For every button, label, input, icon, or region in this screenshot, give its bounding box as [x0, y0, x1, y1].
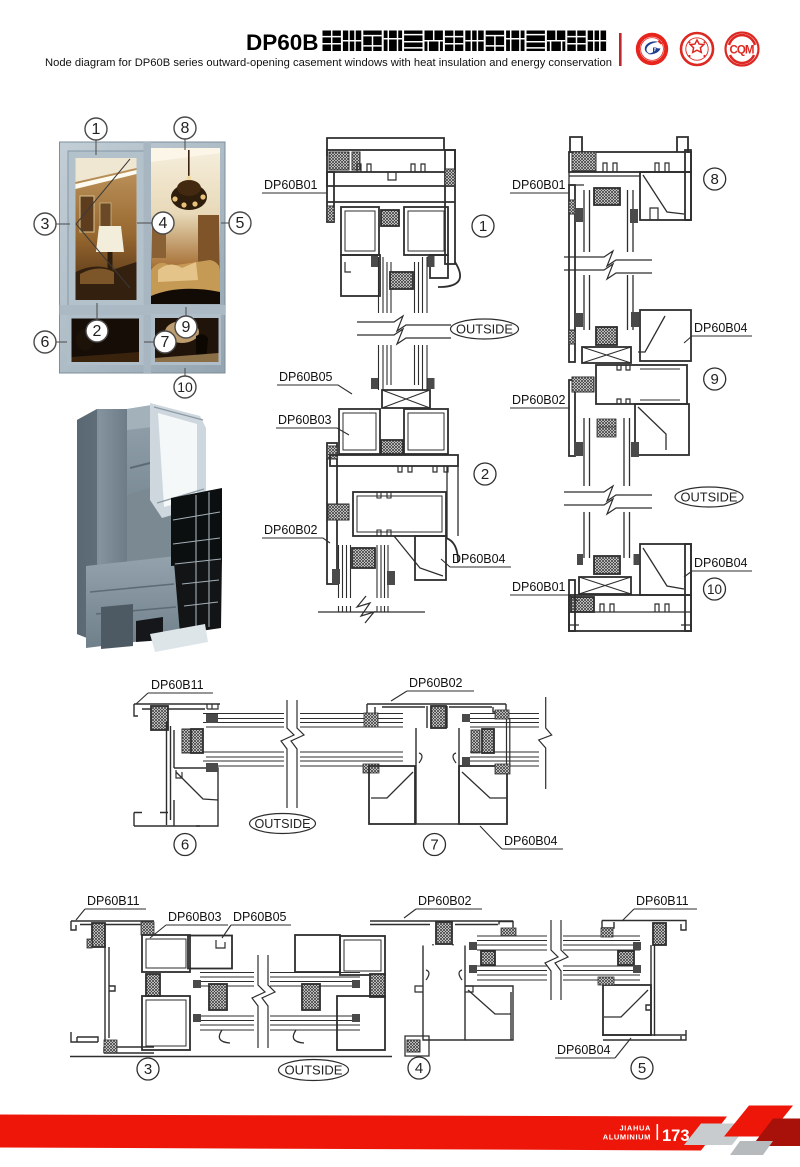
svg-text:DP60B01: DP60B01 [512, 178, 566, 192]
svg-text:DP60B05: DP60B05 [279, 370, 333, 384]
svg-text:7: 7 [161, 334, 170, 351]
svg-text:DP60B11: DP60B11 [151, 678, 204, 692]
svg-text:DP60B02: DP60B02 [512, 393, 566, 407]
svg-text:B: B [653, 46, 659, 55]
svg-text:DP60B02: DP60B02 [409, 676, 463, 690]
svg-text:DP60B04: DP60B04 [694, 321, 748, 335]
svg-text:3: 3 [41, 216, 50, 233]
svg-text:DP60B: DP60B [246, 30, 319, 55]
svg-text:OUTSIDE: OUTSIDE [456, 322, 513, 337]
svg-text:9: 9 [711, 371, 719, 388]
svg-text:OUTSIDE: OUTSIDE [285, 1063, 343, 1078]
svg-text:OUTSIDE: OUTSIDE [681, 490, 738, 505]
svg-text:6: 6 [41, 334, 50, 351]
svg-text:JIAHUA: JIAHUA [619, 1124, 651, 1133]
svg-text:DP60B05: DP60B05 [233, 910, 287, 924]
svg-text:DP60B02: DP60B02 [418, 894, 472, 908]
svg-text:OUTSIDE: OUTSIDE [255, 816, 311, 831]
svg-text:1: 1 [479, 218, 487, 235]
svg-text:DP60B04: DP60B04 [694, 556, 748, 570]
svg-text:173: 173 [662, 1127, 690, 1145]
svg-text:10: 10 [177, 379, 193, 395]
svg-text:10: 10 [707, 582, 722, 597]
svg-text:DP60B01: DP60B01 [512, 580, 566, 594]
svg-text:7: 7 [430, 837, 438, 854]
svg-text:DP60B03: DP60B03 [168, 910, 222, 924]
svg-text:3: 3 [144, 1061, 152, 1078]
svg-text:Node diagram for DP60B ser: Node diagram for DP60B series outward-op… [45, 57, 612, 69]
svg-text:DP60B03: DP60B03 [278, 413, 332, 427]
svg-text:4: 4 [159, 215, 168, 232]
svg-text:2: 2 [481, 466, 489, 483]
svg-text:ALUMINIUM: ALUMINIUM [603, 1133, 651, 1142]
svg-text:CQM: CQM [730, 45, 755, 57]
svg-text:5: 5 [638, 1060, 646, 1077]
svg-text:DP60B01: DP60B01 [264, 178, 318, 192]
svg-text:DP60B11: DP60B11 [636, 894, 689, 908]
svg-text:DP60B04: DP60B04 [557, 1043, 611, 1057]
svg-text:8: 8 [711, 171, 719, 188]
svg-text:6: 6 [181, 837, 189, 854]
svg-text:DP60B04: DP60B04 [452, 552, 506, 566]
svg-text:8: 8 [181, 120, 190, 137]
svg-text:4: 4 [415, 1060, 423, 1077]
svg-text:DP60B11: DP60B11 [87, 894, 140, 908]
svg-text:2: 2 [93, 323, 102, 340]
svg-text:DP60B02: DP60B02 [264, 523, 318, 537]
svg-text:9: 9 [182, 319, 191, 336]
svg-text:5: 5 [236, 215, 245, 232]
svg-text:DP60B04: DP60B04 [504, 834, 558, 848]
svg-text:1: 1 [92, 121, 101, 138]
